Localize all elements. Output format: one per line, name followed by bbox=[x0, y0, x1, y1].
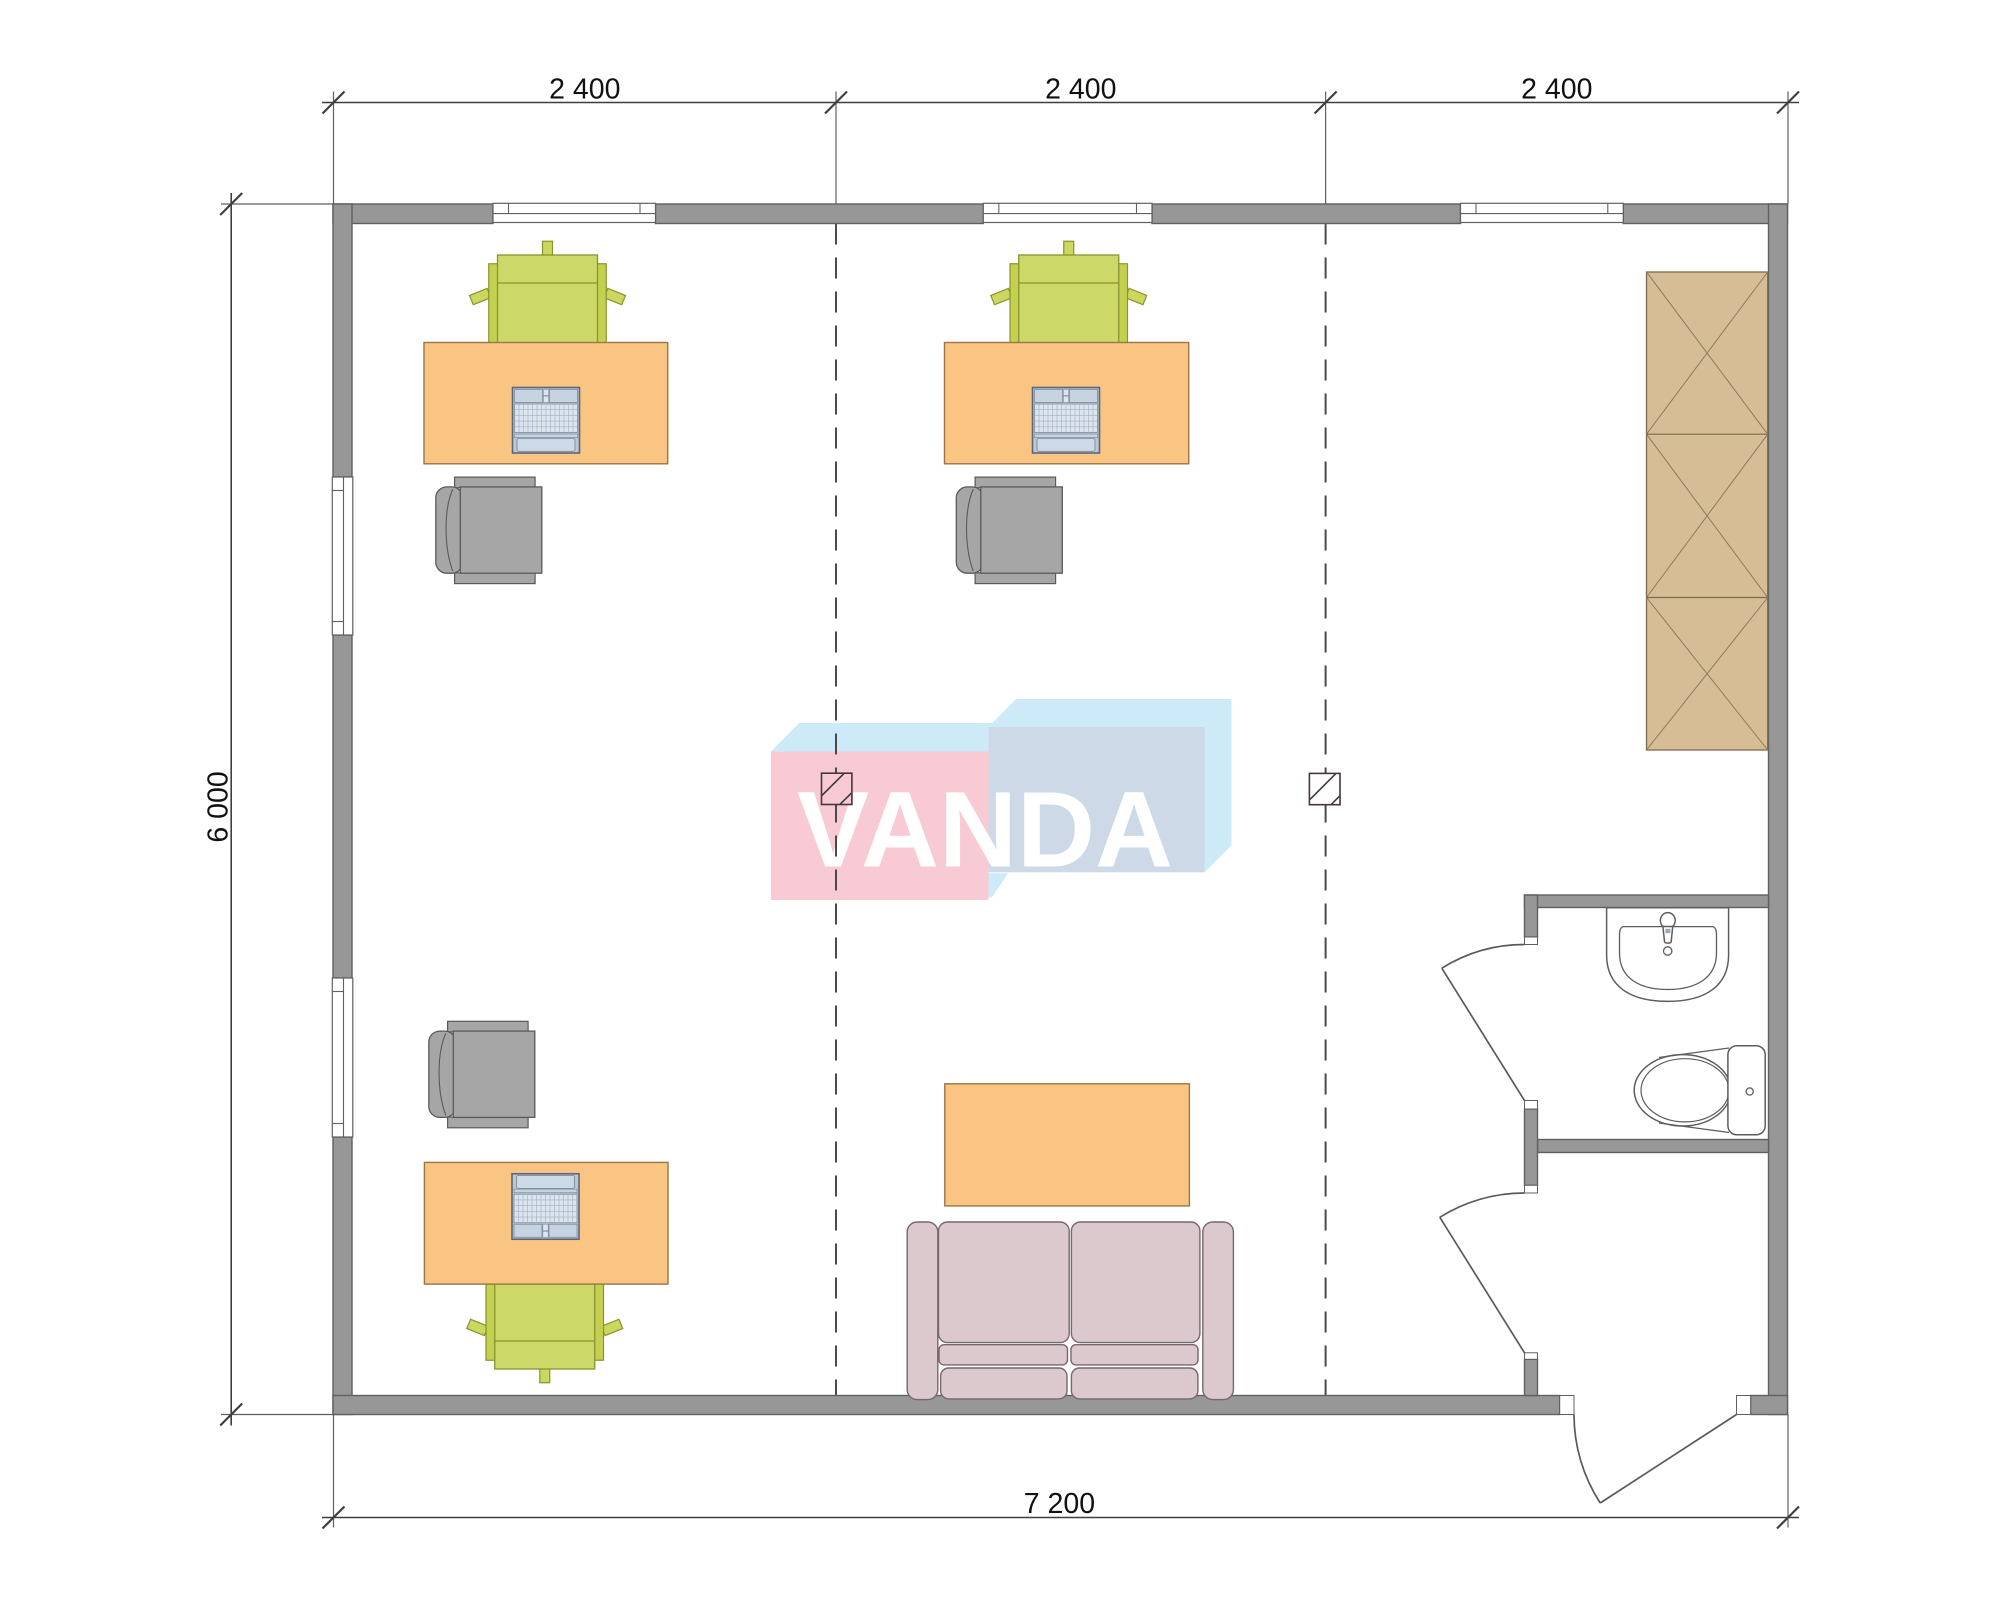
svg-text:7 200: 7 200 bbox=[1024, 1488, 1095, 1520]
svg-text:6 000: 6 000 bbox=[203, 771, 235, 842]
svg-text:VANDA: VANDA bbox=[797, 769, 1173, 890]
svg-text:2 400: 2 400 bbox=[1045, 74, 1116, 106]
svg-text:2 400: 2 400 bbox=[549, 74, 620, 106]
svg-text:2 400: 2 400 bbox=[1521, 74, 1592, 106]
